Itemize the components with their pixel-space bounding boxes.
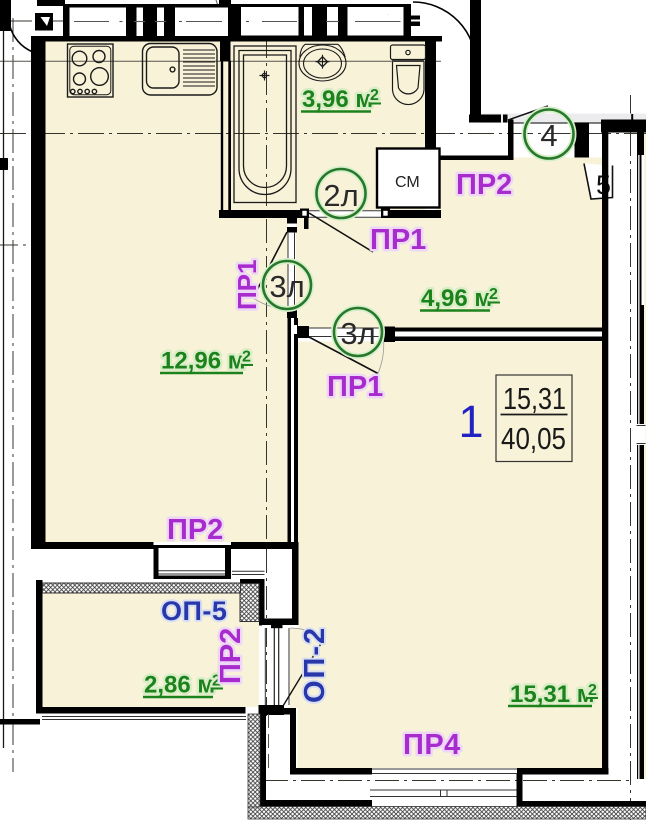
svg-text:2: 2 bbox=[242, 349, 251, 366]
svg-text:4,96 м: 4,96 м bbox=[421, 285, 492, 312]
svg-text:ПР1: ПР1 bbox=[232, 260, 262, 311]
svg-text:ПР4: ПР4 bbox=[403, 729, 461, 761]
svg-text:ПР2: ПР2 bbox=[167, 514, 223, 546]
svg-text:2,86 м: 2,86 м bbox=[144, 672, 215, 699]
svg-text:15,31: 15,31 bbox=[503, 381, 566, 416]
svg-text:СМ: СМ bbox=[395, 174, 420, 191]
svg-text:1: 1 bbox=[458, 396, 483, 447]
svg-text:ПР2: ПР2 bbox=[215, 628, 247, 684]
svg-text:2: 2 bbox=[588, 682, 597, 699]
svg-text:2: 2 bbox=[370, 87, 379, 104]
svg-text:ОП-2: ОП-2 bbox=[299, 626, 331, 703]
svg-text:3л: 3л bbox=[269, 269, 304, 304]
svg-text:2: 2 bbox=[489, 286, 498, 303]
svg-text:ПР2: ПР2 bbox=[456, 169, 512, 201]
svg-text:12,96 м: 12,96 м bbox=[161, 348, 245, 375]
svg-text:ПР1: ПР1 bbox=[327, 371, 383, 403]
svg-text:2л: 2л bbox=[323, 178, 358, 213]
svg-text:40,05: 40,05 bbox=[501, 421, 566, 456]
svg-text:4: 4 bbox=[540, 118, 557, 153]
svg-text:ОП-5: ОП-5 bbox=[161, 596, 227, 626]
svg-text:3,96 м: 3,96 м bbox=[302, 86, 373, 113]
svg-text:ПР1: ПР1 bbox=[370, 224, 426, 256]
svg-text:15,31 м: 15,31 м bbox=[510, 681, 594, 708]
svg-text:3л: 3л bbox=[340, 316, 375, 351]
